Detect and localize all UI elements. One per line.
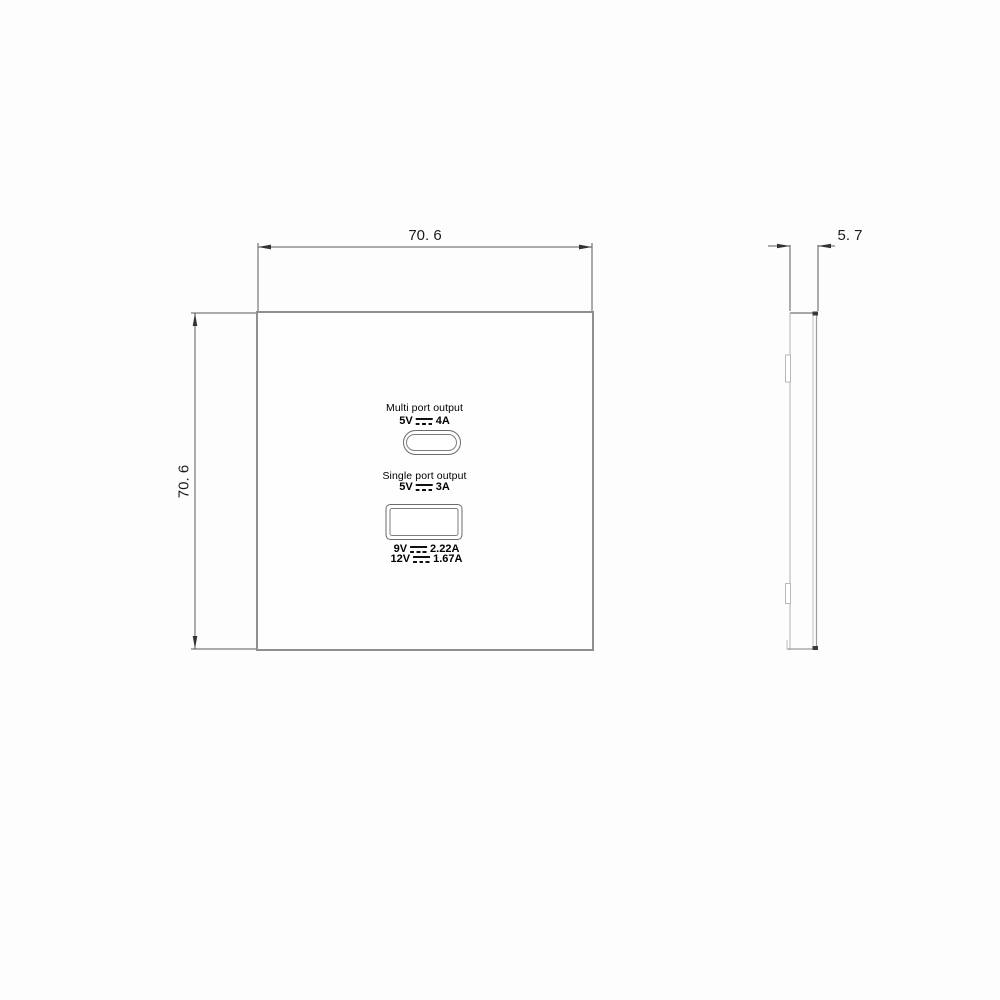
arrowhead-inward-right <box>818 244 831 249</box>
multi-port-volts: 5V <box>399 415 412 427</box>
rating-12v: 12V 1.67A <box>391 553 463 565</box>
rating-12v-volts: 12V <box>391 553 411 565</box>
usb-a-port <box>385 504 462 540</box>
side-top-corner-mark <box>813 312 819 316</box>
front-view-plate: Multi port output 5V 4A Single port outp… <box>256 311 594 651</box>
dimension-value-thickness: 5. 7 <box>832 227 868 244</box>
mounting-clip-top <box>786 355 791 382</box>
multi-port-label: Multi port output <box>386 402 463 414</box>
dc-symbol-icon <box>416 418 433 425</box>
dimension-value-width: 70. 6 <box>406 227 444 244</box>
usb-c-port-inner <box>406 434 457 452</box>
arrowhead-bottom <box>193 636 198 649</box>
dc-symbol-icon <box>413 556 430 563</box>
dc-symbol-icon <box>410 546 427 553</box>
single-port-amps: 3A <box>436 481 450 493</box>
mounting-clip-bottom <box>786 584 791 604</box>
side-thickness-dimension <box>768 244 835 311</box>
dimension-value-height: 70. 6 <box>176 462 193 502</box>
usb-c-port <box>403 430 461 455</box>
arrowhead-inward-left <box>777 244 790 249</box>
technical-drawing-canvas: Multi port output 5V 4A Single port outp… <box>0 0 1000 1000</box>
multi-port-amps: 4A <box>436 415 450 427</box>
side-view-profile <box>786 312 819 651</box>
arrowhead-left <box>258 245 271 250</box>
left-height-dimension <box>191 313 256 649</box>
arrowhead-right <box>579 245 592 250</box>
single-port-rating: 5V 3A <box>399 481 450 493</box>
dc-symbol-icon <box>416 484 433 491</box>
top-width-dimension <box>258 243 592 311</box>
rating-12v-amps: 1.67A <box>433 553 462 565</box>
multi-port-rating: 5V 4A <box>399 415 450 427</box>
side-bottom-corner-mark <box>813 646 819 650</box>
usb-a-port-inner <box>389 508 458 536</box>
arrowhead-top <box>193 313 198 326</box>
single-port-volts: 5V <box>399 481 412 493</box>
